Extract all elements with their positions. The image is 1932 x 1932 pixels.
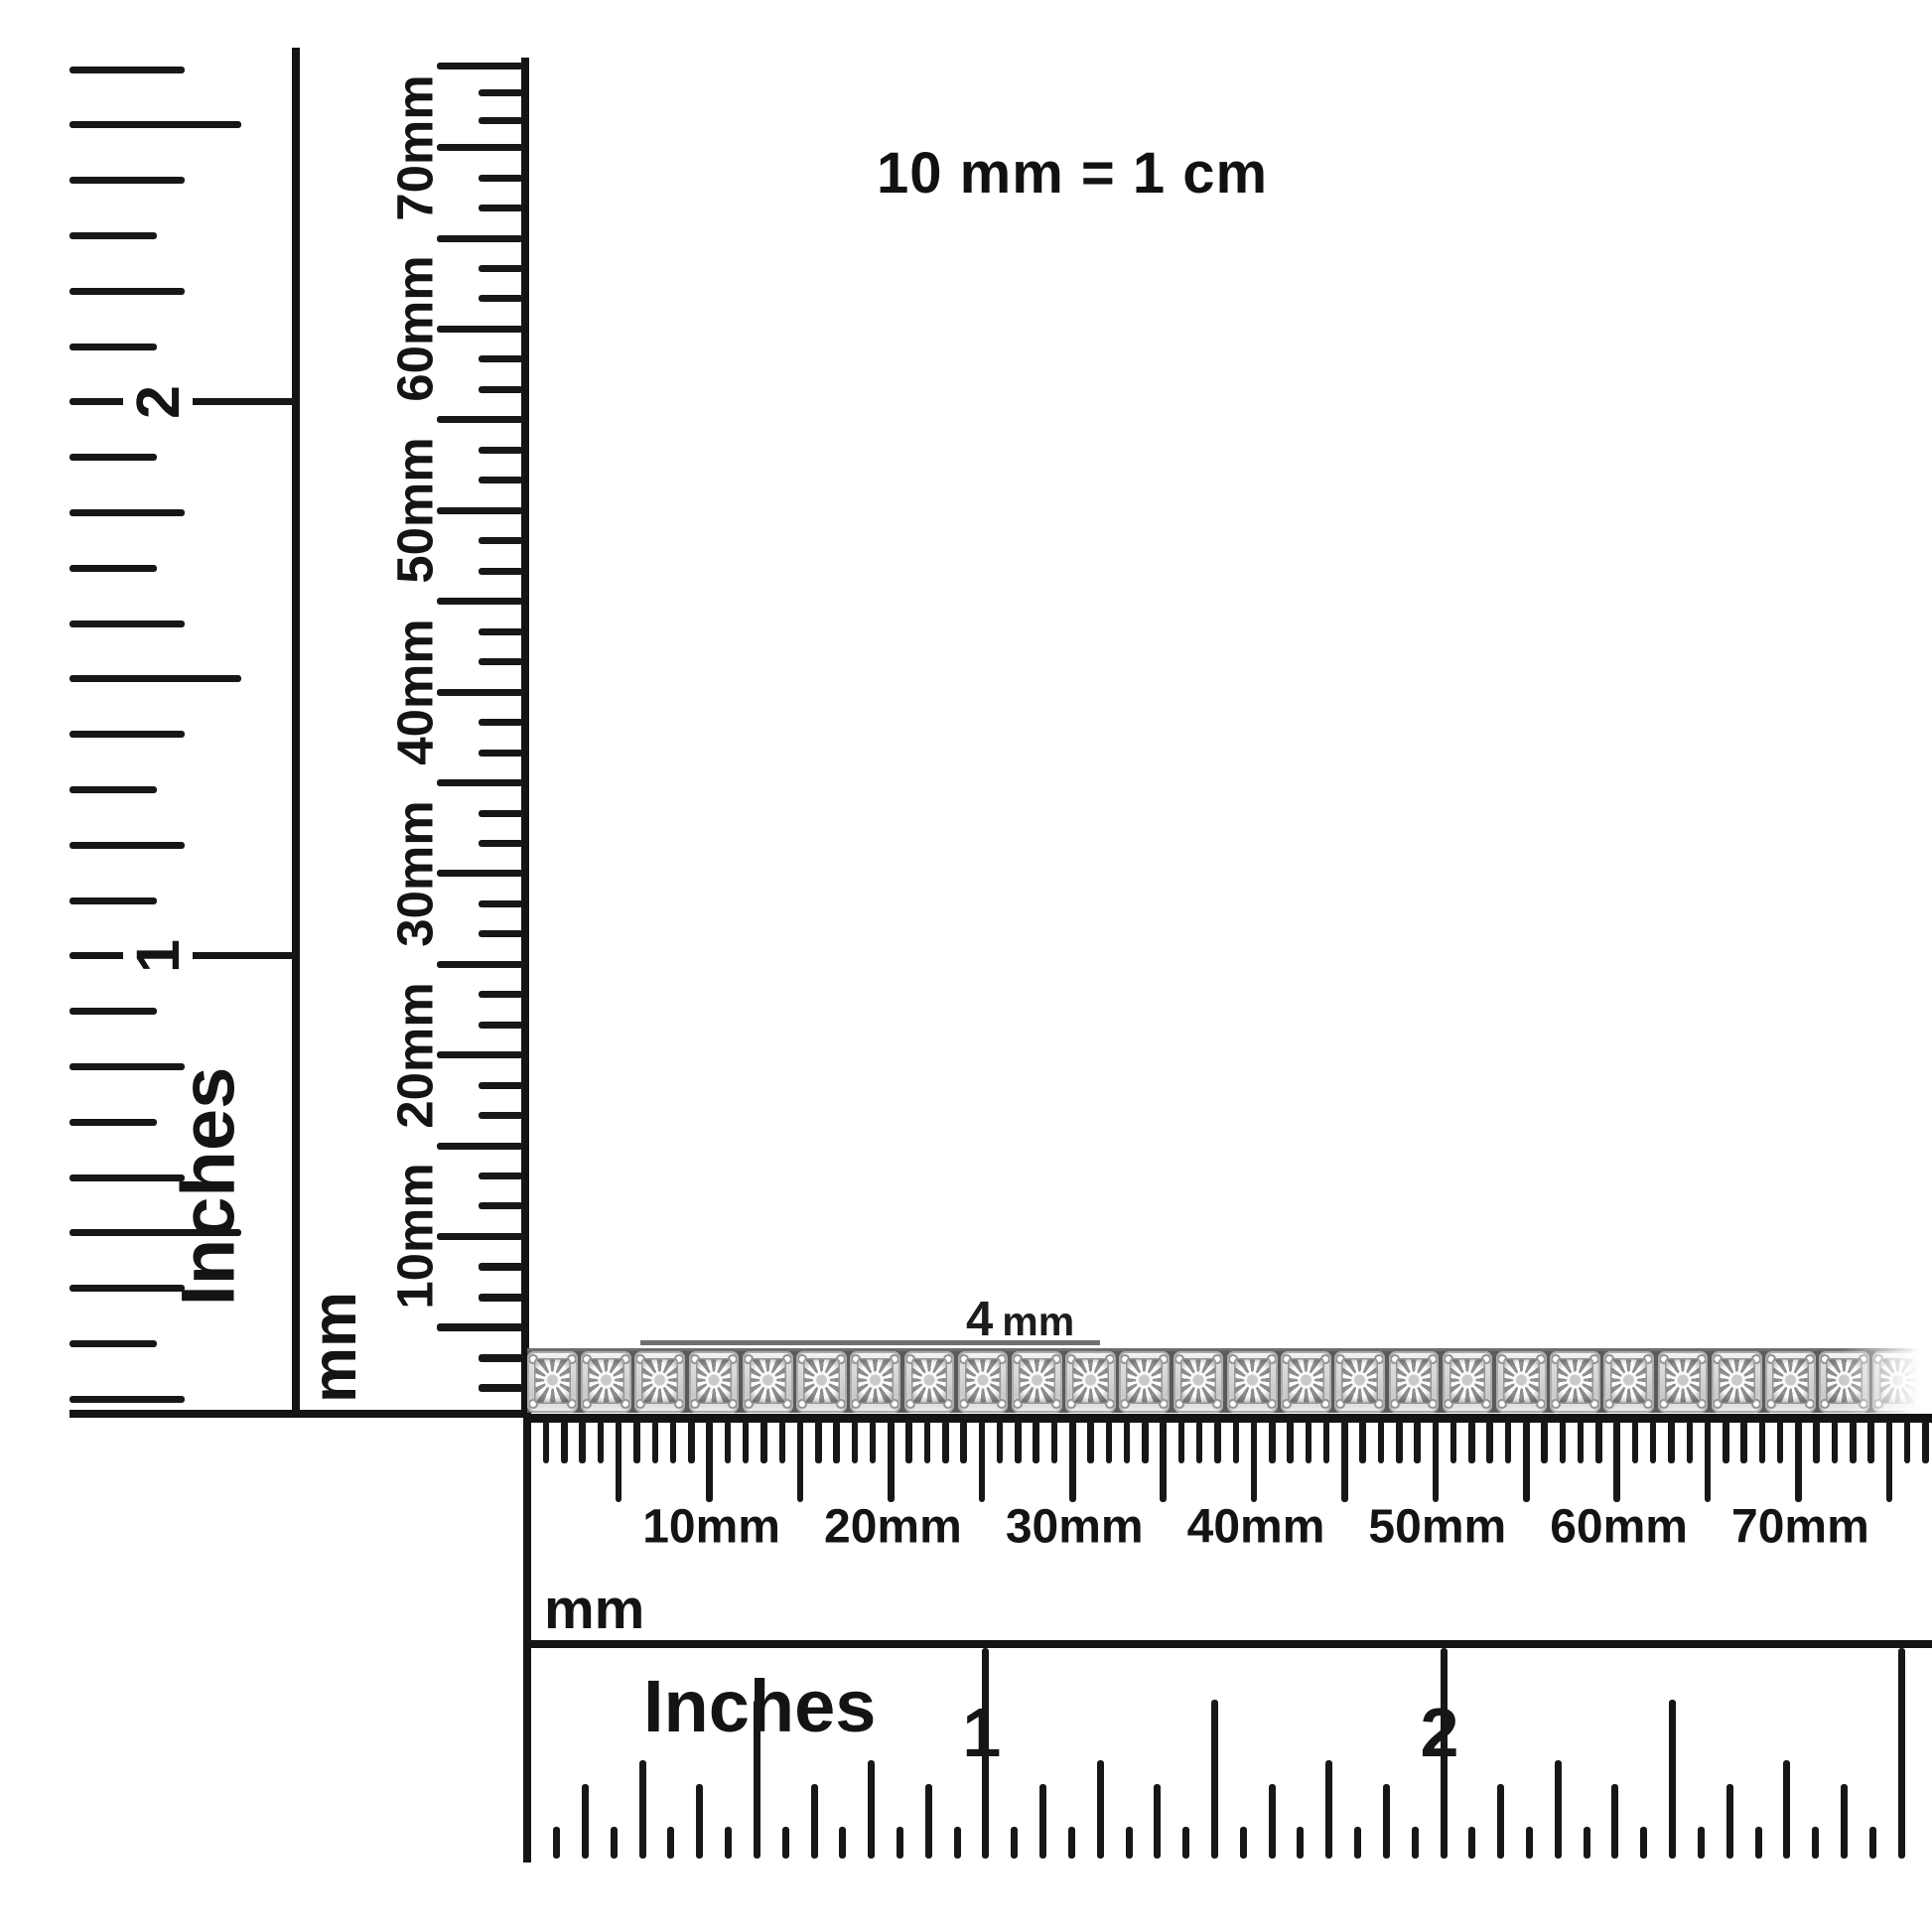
mm-tick (1777, 1421, 1784, 1463)
bracelet-link (1389, 1351, 1440, 1413)
inch-tick (667, 1827, 674, 1859)
mm-tick (479, 447, 523, 454)
mm-tick (1087, 1421, 1094, 1463)
inch-tick (1068, 1827, 1075, 1859)
bracelet-link (850, 1351, 900, 1413)
diamond-sunburst-icon (1288, 1358, 1324, 1404)
diamond-sunburst-icon (1396, 1358, 1433, 1404)
mm-tick (1904, 1421, 1911, 1463)
mm-tick (1450, 1421, 1457, 1463)
bracelet (527, 1348, 1923, 1413)
bracelet-link (1334, 1351, 1385, 1413)
mm-tick (1705, 1421, 1712, 1502)
mm-tick (1687, 1421, 1694, 1463)
mm-tick-label: 50mm (386, 437, 445, 583)
inch-tick (69, 1008, 157, 1015)
mm-tick (1269, 1421, 1276, 1463)
mm-tick (437, 326, 523, 333)
mm-tick (437, 598, 523, 605)
mm-tick (479, 810, 523, 817)
bracelet-link (634, 1351, 685, 1413)
mm-tick-label: 20mm (386, 982, 445, 1128)
diamond-sunburst-icon (750, 1358, 786, 1404)
mm-tick-label: 70mm (386, 74, 445, 220)
bracelet-link (1496, 1351, 1547, 1413)
bracelet-link (796, 1351, 847, 1413)
mm-tick-label: 30mm (386, 800, 445, 946)
inch-tick (1497, 1784, 1504, 1859)
inch-tick (1841, 1784, 1848, 1859)
mm-tick-label: 30mm (1006, 1500, 1144, 1555)
inch-tick (1211, 1700, 1218, 1859)
horizontal-mm-ruler-top-line (523, 1414, 1932, 1423)
left-inch-ruler-baseline (292, 48, 300, 1417)
mm-tick-label: 20mm (824, 1500, 962, 1555)
inch-tick (1297, 1827, 1304, 1859)
mm-tick (1069, 1421, 1076, 1502)
inch-tick (1039, 1784, 1046, 1859)
inch-tick (811, 1784, 818, 1859)
mm-tick-label: 10mm (386, 1164, 445, 1310)
inch-tick (1097, 1760, 1104, 1859)
inch-tick (1611, 1784, 1618, 1859)
mm-tick (1922, 1421, 1929, 1463)
inch-tick (1698, 1827, 1705, 1859)
inch-tick (1555, 1760, 1562, 1859)
mm-tick (1723, 1421, 1729, 1463)
inch-tick (69, 621, 185, 627)
inch-number: 2 (1421, 1693, 1459, 1772)
mm-tick-label: 40mm (1187, 1500, 1325, 1555)
inch-tick (1412, 1827, 1419, 1859)
bottom-rulers-left-edge-line (523, 1414, 531, 1863)
inch-tick (69, 842, 185, 849)
mm-tick (960, 1421, 967, 1463)
mm-tick (1106, 1421, 1113, 1463)
mm-tick (479, 205, 523, 211)
mm-tick (437, 235, 523, 242)
inch-tick (897, 1827, 903, 1859)
bracelet-link (1281, 1351, 1331, 1413)
bracelet-link (581, 1351, 631, 1413)
mm-tick (479, 840, 523, 847)
inch-tick (1011, 1827, 1018, 1859)
bracelet-link (904, 1351, 955, 1413)
mm-tick (1668, 1421, 1675, 1463)
mm-tick (579, 1421, 586, 1463)
mm-tick (1414, 1421, 1421, 1463)
mm-tick (616, 1421, 622, 1502)
mm-tick (760, 1421, 767, 1463)
inch-tick (69, 1396, 185, 1403)
bracelet-link (958, 1351, 1009, 1413)
mm-tick (1740, 1421, 1747, 1463)
vertical-mm-ruler-unit-label: mm (299, 1292, 370, 1403)
mm-tick (1196, 1421, 1203, 1463)
inch-tick (69, 454, 157, 461)
inch-tick (925, 1784, 932, 1859)
width-annotation-unit: mm (1002, 1299, 1074, 1344)
mm-tick (1560, 1421, 1567, 1463)
diamond-sunburst-icon (588, 1358, 624, 1404)
mm-tick (437, 870, 523, 877)
mm-tick (479, 1173, 523, 1179)
inch-tick (1269, 1784, 1276, 1859)
left-inch-ruler-unit-label: Inches (166, 1067, 252, 1307)
bracelet-link (1765, 1351, 1816, 1413)
mm-tick (1033, 1421, 1039, 1463)
diamond-sunburst-icon (1610, 1358, 1647, 1404)
bracelet-link (743, 1351, 793, 1413)
mm-tick (743, 1421, 750, 1463)
inch-tick (69, 288, 185, 295)
mm-tick (1233, 1421, 1240, 1463)
mm-tick (1505, 1421, 1512, 1463)
mm-tick (1359, 1421, 1366, 1463)
inch-tick (1640, 1827, 1647, 1859)
mm-tick (1541, 1421, 1548, 1463)
mm-tick (670, 1421, 677, 1463)
mm-tick (633, 1421, 640, 1463)
inch-tick (69, 1119, 157, 1126)
mm-tick-label: 50mm (1368, 1500, 1506, 1555)
mm-tick (779, 1421, 786, 1463)
mm-tick (1287, 1421, 1294, 1463)
bracelet-link (1173, 1351, 1224, 1413)
diamond-sunburst-icon (1341, 1358, 1378, 1404)
vertical-mm-ruler-baseline (521, 58, 529, 1417)
inch-tick (1526, 1827, 1533, 1859)
mm-tick (706, 1421, 713, 1502)
inch-tick (754, 1700, 760, 1859)
mm-tick (479, 386, 523, 393)
mm-tick (1468, 1421, 1475, 1463)
mm-tick (479, 265, 523, 272)
mm-tick (942, 1421, 949, 1463)
bracelet-link (1119, 1351, 1170, 1413)
mm-tick (1578, 1421, 1585, 1463)
mm-tick (479, 1264, 523, 1271)
mm-tick (479, 477, 523, 483)
inch-tick (69, 675, 241, 682)
mm-tick (437, 144, 523, 151)
left-ruler-bottom-edge-line (69, 1410, 531, 1418)
inch-number: 1 (123, 935, 193, 977)
mm-tick (1759, 1421, 1766, 1463)
diamond-sunburst-icon (1449, 1358, 1486, 1404)
mm-tick (1813, 1421, 1820, 1463)
mm-tick (1214, 1421, 1221, 1463)
mm-tick (833, 1421, 840, 1463)
bracelet-link (1712, 1351, 1762, 1413)
diamond-sunburst-icon (1665, 1358, 1702, 1404)
mm-tick-label: 10mm (642, 1500, 780, 1555)
mm-tick (1832, 1421, 1839, 1463)
diamond-sunburst-icon (1072, 1358, 1109, 1404)
inch-tick (1182, 1827, 1189, 1859)
inch-tick (1468, 1827, 1475, 1859)
mm-tick (437, 961, 523, 968)
inch-tick (725, 1827, 732, 1859)
diamond-sunburst-icon (641, 1358, 678, 1404)
mm-tick (1433, 1421, 1440, 1502)
inch-tick (69, 1174, 185, 1181)
mm-tick (479, 628, 523, 635)
mm-tick (725, 1421, 732, 1463)
mm-tick (543, 1421, 550, 1463)
mm-tick (437, 1143, 523, 1150)
inch-tick (639, 1760, 646, 1859)
diamond-sunburst-icon (1557, 1358, 1593, 1404)
mm-tick (437, 689, 523, 696)
bracelet-link (1550, 1351, 1600, 1413)
inch-tick (1126, 1827, 1133, 1859)
diamond-sunburst-icon (1234, 1358, 1271, 1404)
mm-tick (479, 1295, 523, 1302)
diamond-sunburst-icon (803, 1358, 840, 1404)
inch-tick (1354, 1827, 1361, 1859)
mm-tick (888, 1421, 895, 1502)
inch-tick (1869, 1827, 1876, 1859)
mm-tick (479, 991, 523, 998)
bracelet-link (1603, 1351, 1654, 1413)
inch-tick (1755, 1827, 1762, 1859)
mm-tick (479, 117, 523, 124)
mm-tick (1850, 1421, 1857, 1463)
diamond-sunburst-icon (1503, 1358, 1540, 1404)
diamond-sunburst-icon (1719, 1358, 1755, 1404)
mm-tick (561, 1421, 568, 1463)
diamond-sunburst-icon (534, 1358, 571, 1404)
mm-tick (815, 1421, 822, 1463)
mm-tick (437, 779, 523, 786)
mm-tick (437, 1051, 523, 1058)
mm-tick (479, 1202, 523, 1209)
mm-tick (479, 1022, 523, 1029)
width-annotation-label: 4mm (966, 1292, 1074, 1347)
mm-tick (1650, 1421, 1657, 1463)
inch-number: 1 (962, 1693, 1001, 1772)
mm-tick (1051, 1421, 1058, 1463)
diamond-sunburst-icon (857, 1358, 894, 1404)
diamond-sunburst-icon (911, 1358, 948, 1404)
bracelet-link (689, 1351, 740, 1413)
bracelet-link (1443, 1351, 1493, 1413)
inch-tick (1584, 1827, 1590, 1859)
mm-tick (479, 355, 523, 362)
inch-tick (69, 344, 157, 350)
mm-tick (479, 1112, 523, 1119)
mm-tick (1613, 1421, 1620, 1502)
mm-tick-label: 40mm (386, 619, 445, 764)
mm-tick (437, 507, 523, 514)
mm-tick (479, 1385, 523, 1392)
mm-tick (1486, 1421, 1493, 1463)
mm-tick (437, 416, 523, 423)
mm-tick (437, 63, 523, 69)
mm-tick (1142, 1421, 1149, 1463)
diamond-sunburst-icon (1180, 1358, 1217, 1404)
mm-tick (1867, 1421, 1874, 1463)
mm-tick (870, 1421, 877, 1463)
inch-tick (1812, 1827, 1819, 1859)
bracelet-link (1658, 1351, 1709, 1413)
mm-tick (1378, 1421, 1385, 1463)
bracelet-link (527, 1351, 578, 1413)
inch-tick (1154, 1784, 1161, 1859)
mm-tick (437, 1233, 523, 1240)
inch-tick (839, 1827, 846, 1859)
horizontal-mm-ruler-unit-label: mm (544, 1577, 644, 1642)
inch-tick (69, 897, 157, 904)
inch-tick (69, 786, 157, 793)
mm-tick (1251, 1421, 1258, 1502)
mm-tick (652, 1421, 659, 1463)
mm-tick (1178, 1421, 1185, 1463)
mm-tick (1124, 1421, 1131, 1463)
inch-tick (954, 1827, 961, 1859)
mm-tick (1160, 1421, 1167, 1502)
mm-tick (479, 930, 523, 937)
mm-tick-label: 60mm (1550, 1500, 1688, 1555)
inch-tick (696, 1784, 703, 1859)
inch-tick (69, 1285, 185, 1292)
bracelet-link (1065, 1351, 1116, 1413)
mm-tick (1341, 1421, 1348, 1502)
mm-tick (1632, 1421, 1639, 1463)
mm-tick-label: 70mm (1731, 1500, 1869, 1555)
inch-tick (1726, 1784, 1733, 1859)
bracelet-link (1227, 1351, 1278, 1413)
mm-tick (979, 1421, 986, 1502)
inch-tick (69, 731, 185, 738)
mm-tick-label: 60mm (386, 256, 445, 402)
mm-tick (905, 1421, 912, 1463)
mm-tick (479, 658, 523, 665)
diamond-sunburst-icon (1126, 1358, 1163, 1404)
width-annotation-value: 4 (966, 1293, 993, 1346)
mm-tick (479, 537, 523, 544)
mm-tick (852, 1421, 859, 1463)
mm-tick (479, 1082, 523, 1089)
inch-tick (69, 177, 185, 184)
diamond-sunburst-icon (965, 1358, 1002, 1404)
mm-tick (1396, 1421, 1403, 1463)
inch-tick (1383, 1784, 1390, 1859)
inch-tick (868, 1760, 875, 1859)
mm-tick (924, 1421, 931, 1463)
mm-tick (479, 89, 523, 96)
inch-tick (69, 1229, 241, 1236)
inch-tick (69, 565, 157, 572)
inch-tick (611, 1827, 618, 1859)
diamond-sunburst-icon (1019, 1358, 1055, 1404)
inch-tick (69, 1340, 157, 1347)
mm-tick (479, 900, 523, 907)
inch-tick (69, 232, 157, 239)
mm-tick (479, 719, 523, 726)
bracelet-link (1012, 1351, 1062, 1413)
inch-tick (1669, 1700, 1676, 1859)
mm-tick (1306, 1421, 1312, 1463)
diamond-sunburst-icon (1772, 1358, 1809, 1404)
measurement-diagram: 10 mm = 1 cm Inches 21 mm 70mm60mm50mm40… (0, 0, 1932, 1932)
mm-tick (1323, 1421, 1330, 1463)
mm-tick (479, 1355, 523, 1362)
diamond-sunburst-icon (696, 1358, 733, 1404)
inch-tick (553, 1827, 560, 1859)
bottom-inch-ruler-top-line (523, 1640, 1932, 1648)
mm-tick (1523, 1421, 1530, 1502)
inch-tick (69, 121, 241, 128)
inch-number: 2 (123, 381, 193, 423)
mm-tick (1595, 1421, 1602, 1463)
inch-tick (1783, 1760, 1790, 1859)
inch-tick (782, 1827, 789, 1859)
inch-tick (1898, 1648, 1905, 1859)
mm-tick (1886, 1421, 1893, 1502)
mm-tick (1795, 1421, 1802, 1502)
inch-tick (1325, 1760, 1332, 1859)
mm-tick (479, 295, 523, 302)
bracelet-fade (1842, 1342, 1932, 1417)
mm-tick (479, 175, 523, 182)
mm-tick (437, 1324, 523, 1331)
inch-tick (69, 509, 185, 516)
mm-tick (688, 1421, 695, 1463)
mm-tick (1015, 1421, 1022, 1463)
mm-tick (997, 1421, 1004, 1463)
inch-tick (69, 1063, 185, 1070)
inch-tick (1240, 1827, 1247, 1859)
mm-tick (598, 1421, 605, 1463)
scale-note: 10 mm = 1 cm (877, 140, 1268, 207)
inch-tick (69, 67, 185, 73)
mm-tick (797, 1421, 804, 1502)
inch-tick (582, 1784, 589, 1859)
mm-tick (479, 568, 523, 575)
mm-tick (479, 750, 523, 757)
